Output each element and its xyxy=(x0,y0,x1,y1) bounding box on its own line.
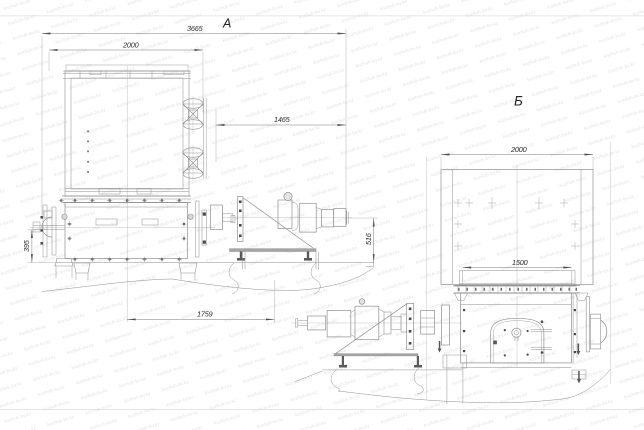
svg-text:3665: 3665 xyxy=(187,24,204,33)
svg-text:2000: 2000 xyxy=(122,41,139,50)
svg-text:1465: 1465 xyxy=(274,115,291,124)
svg-text:Б: Б xyxy=(514,94,523,109)
svg-text:1500: 1500 xyxy=(512,258,528,267)
svg-text:516: 516 xyxy=(364,232,373,245)
svg-text:395: 395 xyxy=(22,239,31,252)
svg-text:2000: 2000 xyxy=(510,145,527,154)
svg-text:А: А xyxy=(222,17,231,31)
svg-text:1759: 1759 xyxy=(197,310,213,319)
